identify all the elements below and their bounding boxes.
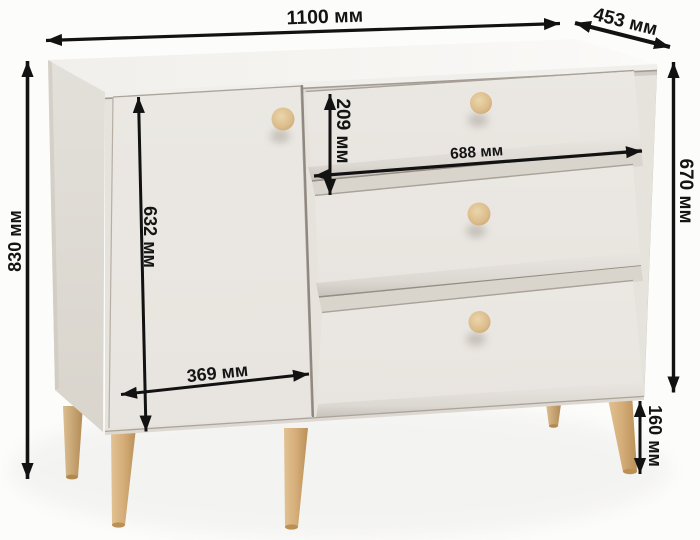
svg-text:1100 мм: 1100 мм (286, 5, 363, 30)
svg-text:160 мм: 160 мм (645, 405, 665, 467)
svg-text:670 мм: 670 мм (675, 158, 696, 223)
svg-text:209 мм: 209 мм (332, 98, 353, 163)
svg-text:632 мм: 632 мм (140, 206, 160, 268)
svg-text:830 мм: 830 мм (5, 210, 25, 272)
